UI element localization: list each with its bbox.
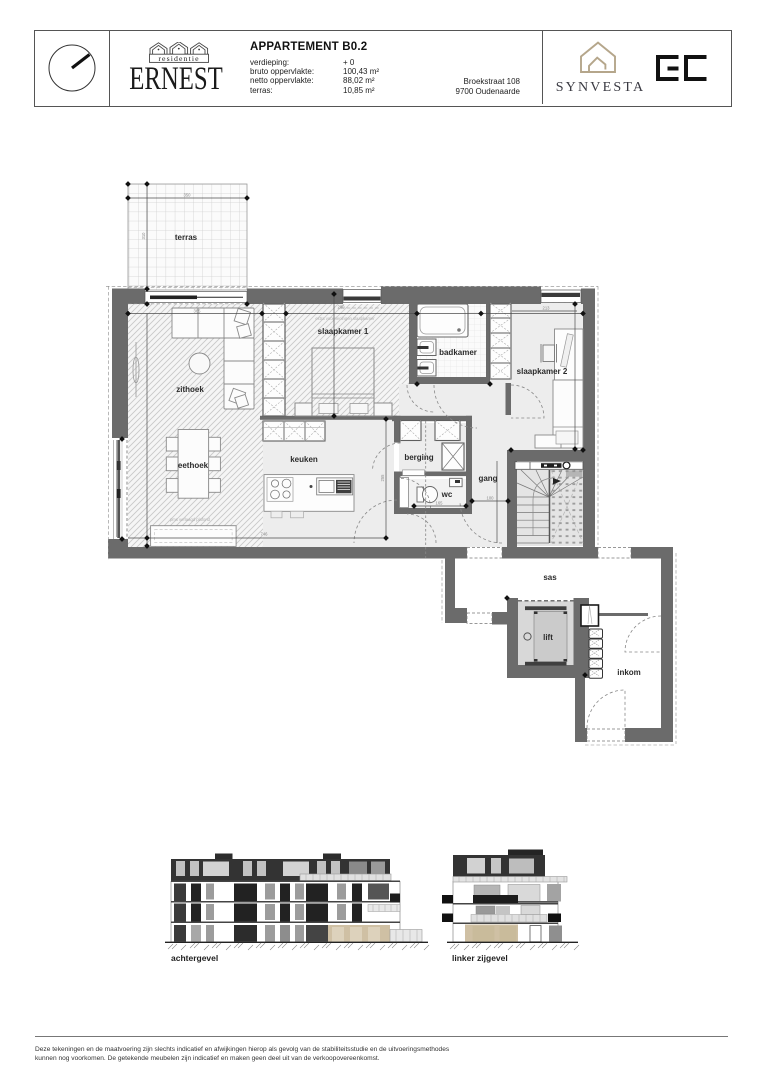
svg-text:berging: berging [404,453,433,462]
svg-text:255: 255 [380,474,385,482]
svg-text:wc: wc [441,490,453,499]
svg-text:100: 100 [487,496,495,501]
svg-text:inkom: inkom [617,668,641,677]
svg-text:badkamer: badkamer [439,348,477,357]
svg-text:extra voorzieningen slaapkamer: extra voorzieningen slaapkamer [315,316,375,321]
svg-text:165: 165 [436,501,444,506]
svg-text:280: 280 [338,305,346,310]
svg-text:achtergevel: achtergevel [171,953,218,963]
svg-text:213: 213 [543,306,551,311]
svg-text:746: 746 [261,532,269,537]
svg-text:365: 365 [194,309,202,314]
svg-text:keuken: keuken [290,455,318,464]
svg-text:eethoek: eethoek [178,461,209,470]
svg-text:sas: sas [543,573,557,582]
svg-text:slaapkamer 1: slaapkamer 1 [318,327,369,336]
svg-text:gang: gang [478,474,497,483]
svg-text:350: 350 [184,193,192,198]
svg-text:310: 310 [141,232,146,240]
svg-text:linker zijgevel: linker zijgevel [452,953,508,963]
svg-text:slaapkamer 2: slaapkamer 2 [517,367,568,376]
svg-text:zithoek: zithoek [176,385,204,394]
svg-text:lift: lift [543,633,553,642]
svg-text:pms verlaagd plafond: pms verlaagd plafond [170,517,211,522]
svg-text:terras: terras [175,233,198,242]
